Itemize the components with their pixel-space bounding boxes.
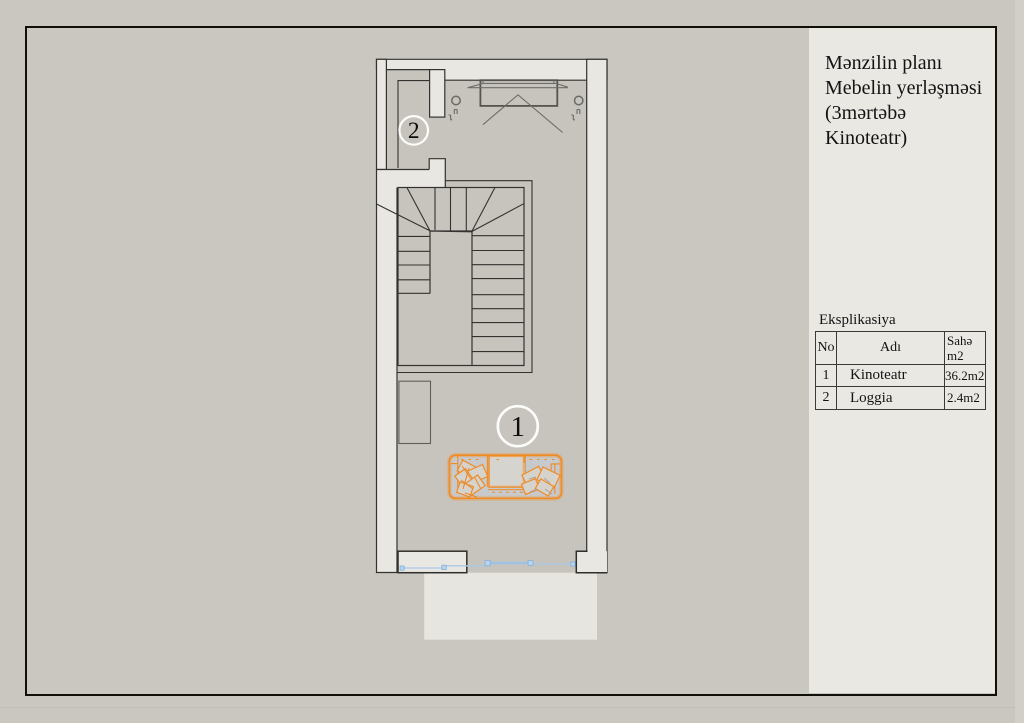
svg-text:1: 1: [511, 412, 525, 443]
svg-text:2: 2: [408, 118, 420, 144]
